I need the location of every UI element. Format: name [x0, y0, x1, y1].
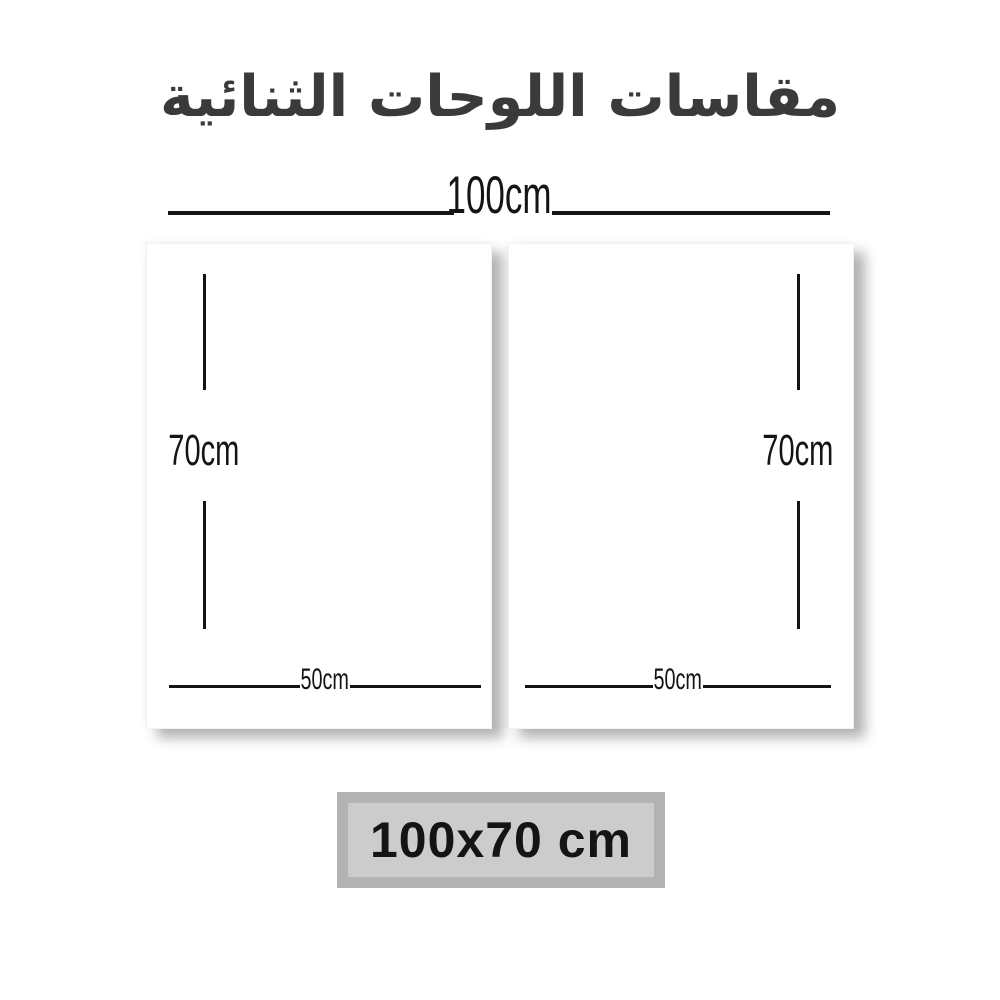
left-panel-height-line-bottom: [203, 501, 206, 629]
page-title: مقاسات اللوحات الثنائية: [0, 64, 1000, 130]
right-panel-height-line-bottom: [797, 501, 800, 629]
left-panel-height-label: 70cm: [168, 429, 239, 473]
total-width-dimension: 100cm: [168, 211, 830, 215]
right-panel-height-dimension: 70cm: [753, 274, 843, 629]
total-width-line-left: [168, 211, 454, 215]
total-width-label: 100cm: [447, 169, 552, 222]
left-panel-height-line-top: [203, 274, 206, 390]
right-panel-height-label: 70cm: [762, 429, 833, 473]
size-badge: 100x70 cm: [337, 792, 665, 888]
size-badge-inner: 100x70 cm: [348, 803, 654, 877]
right-panel-width-line-right: [703, 685, 831, 688]
left-panel-width-label: 50cm: [301, 666, 349, 695]
right-panel: 70cm 50cm: [508, 243, 854, 729]
size-badge-label: 100x70 cm: [370, 811, 632, 869]
left-panel-width-dimension: 50cm: [169, 666, 481, 695]
left-panel-width-line-left: [169, 685, 300, 688]
right-panel-height-line-top: [797, 274, 800, 390]
right-panel-width-label: 50cm: [654, 666, 702, 695]
total-width-line-right: [552, 211, 830, 215]
right-panel-width-dimension: 50cm: [525, 666, 831, 695]
right-panel-width-line-left: [525, 685, 653, 688]
left-panel: 70cm 50cm: [146, 243, 492, 729]
left-panel-width-line-right: [350, 685, 481, 688]
left-panel-height-dimension: 70cm: [159, 274, 249, 629]
